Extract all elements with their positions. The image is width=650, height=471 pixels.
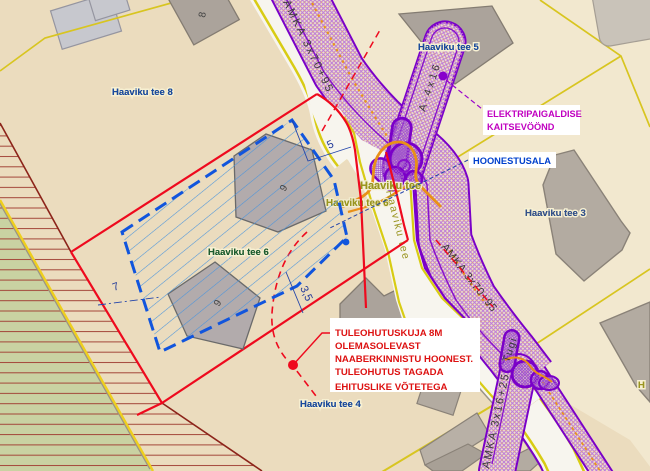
svg-text:Haaviku tee 5: Haaviku tee 5 xyxy=(418,42,479,53)
svg-text:ELEKTRIPAIGALDISE: ELEKTRIPAIGALDISE xyxy=(487,109,582,119)
svg-text:TULEOHUTUSKUJA 8M: TULEOHUTUSKUJA 8M xyxy=(335,328,442,339)
svg-text:TULEOHUTUS TAGADA: TULEOHUTUS TAGADA xyxy=(335,367,444,378)
svg-text:Haaviku tee 3: Haaviku tee 3 xyxy=(525,208,586,219)
svg-text:H: H xyxy=(638,380,645,391)
svg-text:NAABERKINNISTU HOONEST.: NAABERKINNISTU HOONEST. xyxy=(335,354,473,365)
svg-text:OLEMASOLEVAST: OLEMASOLEVAST xyxy=(335,341,421,352)
svg-text:EHITUSLIKE VÕTETEGA: EHITUSLIKE VÕTETEGA xyxy=(335,382,448,393)
svg-text:KAITSEVÖÖND: KAITSEVÖÖND xyxy=(487,122,555,132)
svg-text:Haaviku tee 6: Haaviku tee 6 xyxy=(208,247,269,258)
svg-text:Haaviku tee 4: Haaviku tee 4 xyxy=(300,399,361,410)
svg-text:HOONESTUSALA: HOONESTUSALA xyxy=(473,156,551,166)
svg-text:Haaviku tee 8: Haaviku tee 8 xyxy=(112,87,173,98)
